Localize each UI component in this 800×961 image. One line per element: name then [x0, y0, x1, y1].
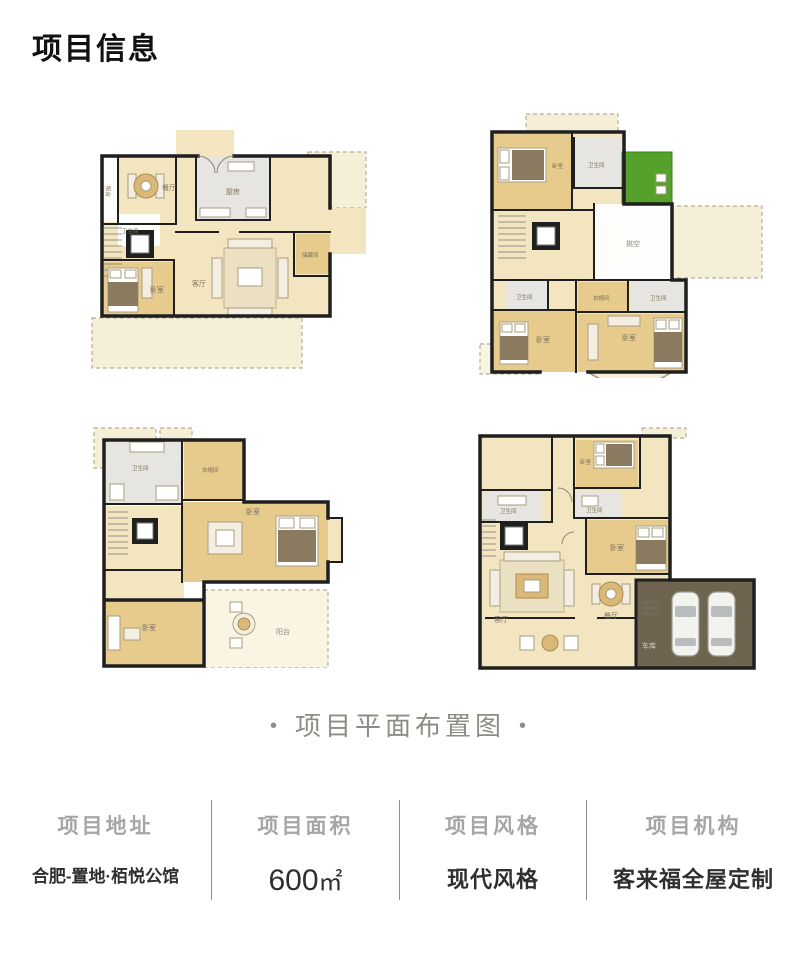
room-label: 卧室 [536, 335, 550, 344]
tea-table-icon [520, 635, 578, 651]
planter [656, 174, 666, 182]
room-label: 卧室 [150, 285, 164, 294]
floorplan-top-right: 卧室 卫生间 挑空 卫生间 衣帽间 卫生间 卧室 卧室 [460, 110, 766, 378]
terrace-area [204, 590, 328, 668]
garage-area [636, 580, 754, 668]
elevator-icon [500, 522, 528, 550]
room-label: 衣帽间 [593, 294, 610, 302]
store-room [484, 440, 548, 488]
planter [656, 186, 666, 194]
info-col-org: 项目机构 客来福全屋定制 [587, 800, 800, 900]
car-icon [708, 592, 735, 656]
room-label: 卧室 [580, 458, 592, 466]
info-col-address: 项目地址 合肥-置地·栢悦公馆 [0, 800, 212, 900]
room-label: 卫生间 [122, 227, 139, 235]
dining-table-icon [592, 582, 630, 606]
elevator-icon [132, 518, 158, 544]
side-porch [330, 208, 366, 254]
info-value-style: 现代风格 [400, 862, 586, 894]
room-label: 卫生间 [650, 294, 667, 302]
room-label: 卧室 [552, 162, 564, 170]
page: 项目信息 [0, 0, 800, 961]
caption-text: 项目平面布置图 [295, 711, 505, 741]
room-label: 卫生间 [132, 464, 149, 472]
room-label: 车库 [642, 641, 656, 650]
info-label: 项目机构 [587, 810, 800, 840]
bed-icon [500, 322, 528, 364]
room-label: 卧室 [142, 623, 156, 632]
area-unit: ㎡ [319, 869, 343, 896]
info-value-org: 客来福全屋定制 [587, 862, 800, 894]
bay-nook [328, 518, 342, 562]
room-label: 阳台 [276, 627, 290, 636]
info-value-address: 合肥-置地·栢悦公馆 [0, 862, 211, 887]
dining-table-icon [128, 174, 164, 198]
room-label: 卧室 [610, 543, 624, 552]
room-label: 客厅 [494, 615, 508, 624]
room-label: 卧室 [246, 507, 260, 516]
room-label: 阳台 [104, 186, 112, 198]
floorplan-top-left: 餐厅 厨房 卫生间 卧室 客厅 储藏间 阳台 [78, 112, 370, 370]
info-label: 项目地址 [0, 810, 211, 840]
bed-icon [498, 148, 546, 182]
room-label: 卫生间 [516, 293, 533, 301]
room-label: 挑空 [626, 239, 640, 248]
car-icon [672, 592, 699, 656]
sofa-icon [490, 552, 574, 612]
page-title: 项目信息 [32, 24, 160, 68]
info-col-area: 项目面积 600㎡ [212, 800, 400, 900]
room-label: 衣帽间 [202, 466, 219, 474]
elevator-icon [532, 222, 560, 250]
bed-icon [636, 526, 666, 570]
room-label: 储藏间 [302, 251, 319, 259]
info-label: 项目风格 [400, 810, 586, 840]
room-label: 卧室 [622, 333, 636, 342]
project-info-row: 项目地址 合肥-置地·栢悦公馆 项目面积 600㎡ 项目风格 现代风格 项目机构… [0, 800, 800, 900]
floorplan-bottom-left: 卫生间 衣帽间 卧室 卧室 阳台 [80, 424, 370, 668]
room-label: 客厅 [192, 279, 206, 288]
bed-icon [594, 442, 634, 468]
room-label: 卫生间 [588, 161, 605, 169]
caption-dot: • [270, 715, 281, 738]
info-label: 项目面积 [212, 810, 399, 840]
room-label: 卫生间 [586, 506, 603, 514]
info-value-area: 600㎡ [212, 862, 399, 898]
room-label: 厨房 [226, 187, 240, 196]
caption-dot: • [519, 715, 530, 738]
section-caption: •项目平面布置图• [0, 706, 800, 743]
room-label: 卫生间 [500, 507, 517, 515]
room-label: 餐厅 [162, 183, 176, 192]
floorplan-bottom-right: 卫生间 卧室 卫生间 卧室 客厅 餐厅 车库 [458, 422, 776, 672]
info-col-style: 项目风格 现代风格 [400, 800, 587, 900]
room-label: 餐厅 [604, 611, 618, 620]
area-number: 600 [268, 864, 318, 897]
